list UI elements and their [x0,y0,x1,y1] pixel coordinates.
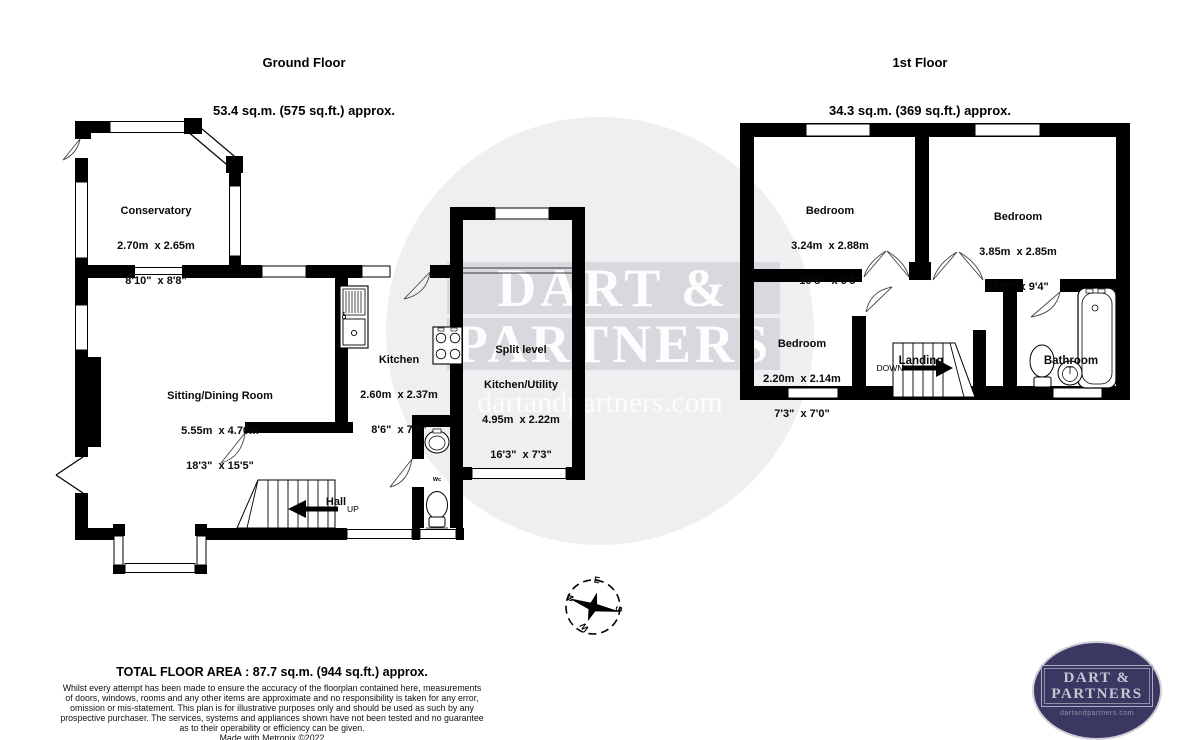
compass-e: E [593,575,601,586]
window [230,186,241,256]
window [347,530,412,539]
logo-text: DART & PARTNERS [1044,668,1149,704]
disclaimer: Whilst every attempt has been made to en… [52,683,492,740]
door-arc [63,139,80,160]
wc-label: Wc [433,477,441,483]
first-floor-area: 34.3 sq.m. (369 sq.ft.) approx. [829,103,1011,119]
disclaimer-line: of doors, windows, rooms and any other i… [52,693,492,703]
compass-s: S [614,606,624,613]
room-label-bedroom3: Bedroom 2.20m x 2.14m 7'3" x 7'0" [763,316,841,444]
ground-floor-header: Ground Floor 53.4 sq.m. (575 sq.ft.) app… [213,23,395,151]
compass-rose: N E S W [564,575,624,634]
disclaimer-line: omission or mis-statement. This plan is … [52,703,492,713]
dart-partners-logo: DART & PARTNERS dartandpartners.com [1032,641,1162,740]
stairs-up-label: UP [347,504,359,514]
bay-window [113,524,207,574]
door-arc [866,287,892,312]
room-label-utility: Split level Kitchen/Utility 4.95m x 2.22… [482,322,560,484]
first-floor-title: 1st Floor [829,55,1011,71]
window [76,305,88,350]
ground-floor-title: Ground Floor [213,55,395,71]
floorplan-page: DART & PARTNERS dartandpartners.com [0,0,1200,740]
window [262,266,306,277]
room-label-bedroom2: Bedroom 3.85m x 2.85m 12'8" x 9'4" [979,189,1057,317]
room-label-landing: Landing [899,333,944,391]
window [420,530,456,539]
disclaimer-line: Whilst every attempt has been made to en… [52,683,492,693]
window [76,182,88,258]
toilet [426,492,448,529]
logo-frame: DART & PARTNERS [1041,665,1152,707]
disclaimer-line: as to their operability or efficiency ca… [52,723,492,733]
room-label-conservatory: Conservatory 2.70m x 2.65m 8'10" x 8'8" [117,183,195,311]
window [110,122,188,133]
compass-w: W [578,620,591,633]
door-arc [390,459,412,487]
total-floor-area: TOTAL FLOOR AREA : 87.7 sq.m. (944 sq.ft… [52,665,492,679]
room-label-bathroom: Bathroom [1044,333,1098,391]
ground-floor-area: 53.4 sq.m. (575 sq.ft.) approx. [213,103,395,119]
compass-n: N [564,593,576,602]
first-floor-header: 1st Floor 34.3 sq.m. (369 sq.ft.) approx… [829,23,1011,151]
door-arc [404,272,430,299]
disclaimer-line: prospective purchaser. The services, sys… [52,713,492,723]
chimney-breast [88,357,101,447]
window [495,208,549,219]
room-label-sitting-dining: Sitting/Dining Room 5.55m x 4.70m 18'3" … [167,368,273,496]
french-doors [56,457,83,493]
room-label-hall: Hall [326,474,346,532]
logo-website: dartandpartners.com [1060,710,1134,717]
window [362,266,390,277]
room-label-bedroom1: Bedroom 3.24m x 2.88m 10'8" x 9'5" [791,183,869,311]
room-label-kitchen: Kitchen 2.60m x 2.37m 8'6" x 7'9" [360,332,438,460]
metropix-credit: Made with Metropix ©2022 [52,733,492,740]
